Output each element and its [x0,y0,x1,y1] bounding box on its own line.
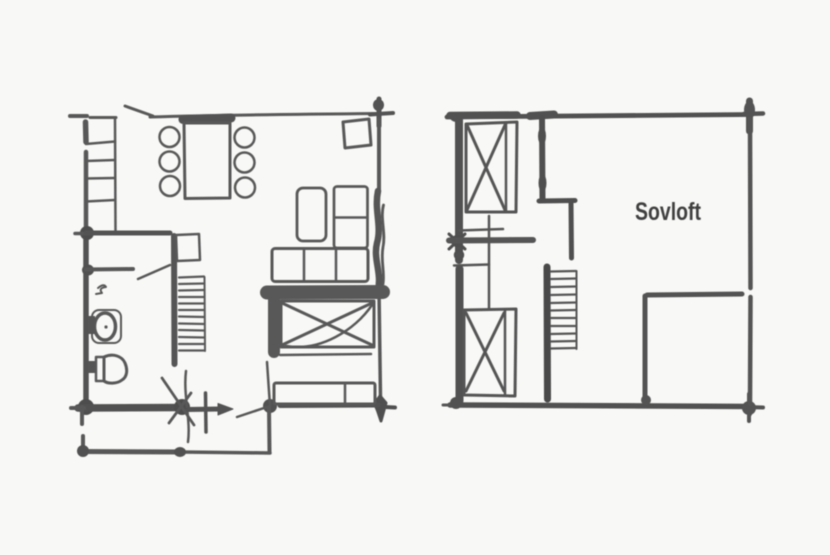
svg-text:Sovloft: Sovloft [635,198,702,226]
